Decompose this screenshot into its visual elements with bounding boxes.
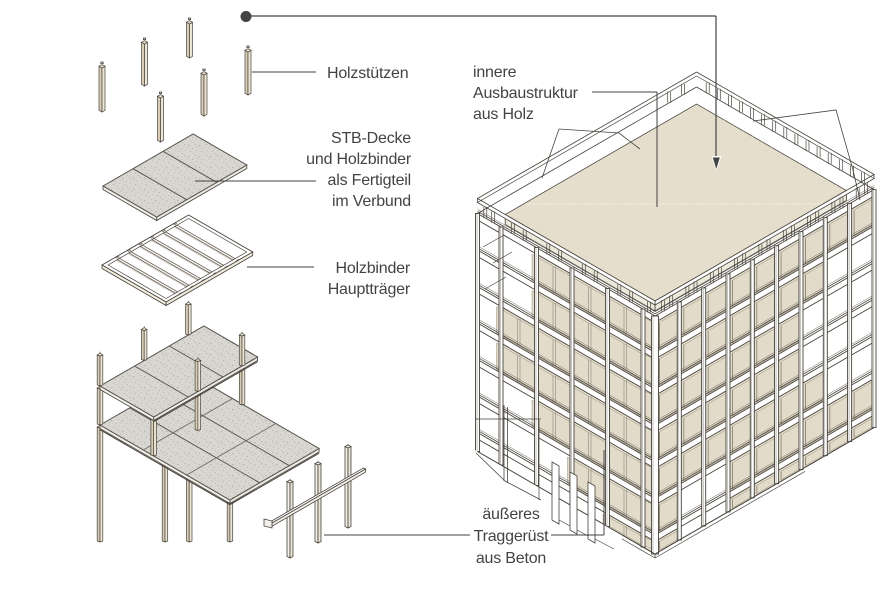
- svg-text:STB-Decke: STB-Decke: [331, 130, 411, 147]
- svg-text:Ausbaustruktur: Ausbaustruktur: [473, 85, 579, 102]
- svg-text:als Fertigteil: als Fertigteil: [328, 172, 411, 189]
- svg-text:Holzstützen: Holzstützen: [327, 65, 408, 82]
- svg-text:Hauptträger: Hauptträger: [328, 281, 411, 298]
- svg-text:Traggerüst: Traggerüst: [474, 528, 550, 545]
- svg-text:Holzbinder: Holzbinder: [336, 260, 411, 277]
- svg-text:im Verbund: im Verbund: [332, 193, 411, 210]
- svg-text:innere: innere: [473, 64, 517, 81]
- svg-text:aus Beton: aus Beton: [476, 550, 546, 567]
- svg-text:aus Holz: aus Holz: [473, 106, 534, 123]
- svg-text:äußeres: äußeres: [482, 506, 539, 523]
- svg-text:und Holzbinder: und Holzbinder: [306, 151, 412, 168]
